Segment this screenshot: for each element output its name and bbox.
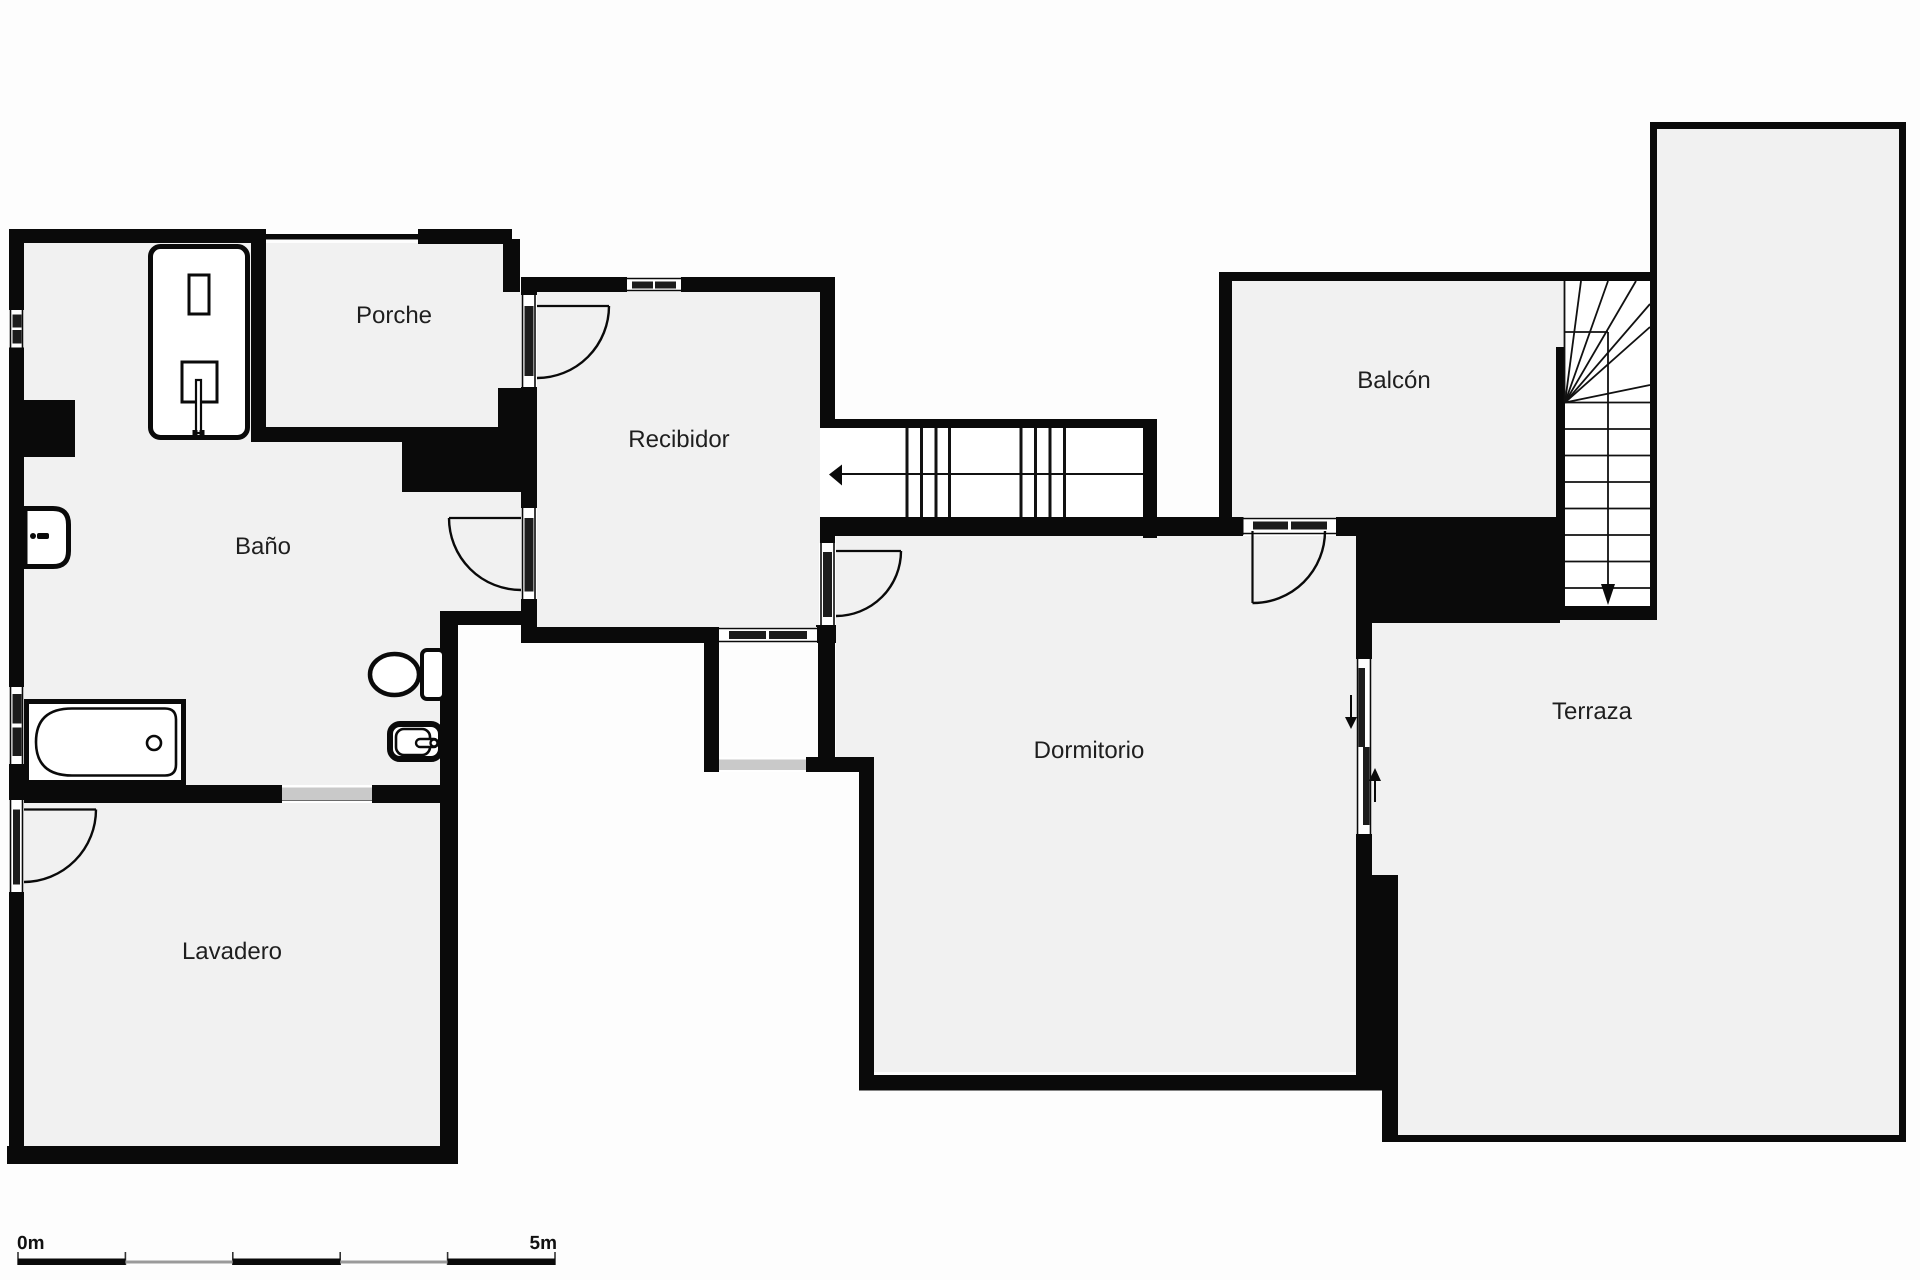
svg-text:Dormitorio: Dormitorio — [1034, 737, 1145, 764]
svg-text:Terraza: Terraza — [1552, 698, 1633, 725]
svg-text:Balcón: Balcón — [1357, 367, 1430, 394]
svg-text:Porche: Porche — [356, 302, 432, 329]
svg-text:Baño: Baño — [235, 533, 291, 560]
svg-text:Lavadero: Lavadero — [182, 938, 282, 965]
svg-text:Recibidor: Recibidor — [628, 426, 729, 453]
svg-text:5m: 5m — [530, 1233, 557, 1254]
svg-text:0m: 0m — [17, 1233, 44, 1254]
